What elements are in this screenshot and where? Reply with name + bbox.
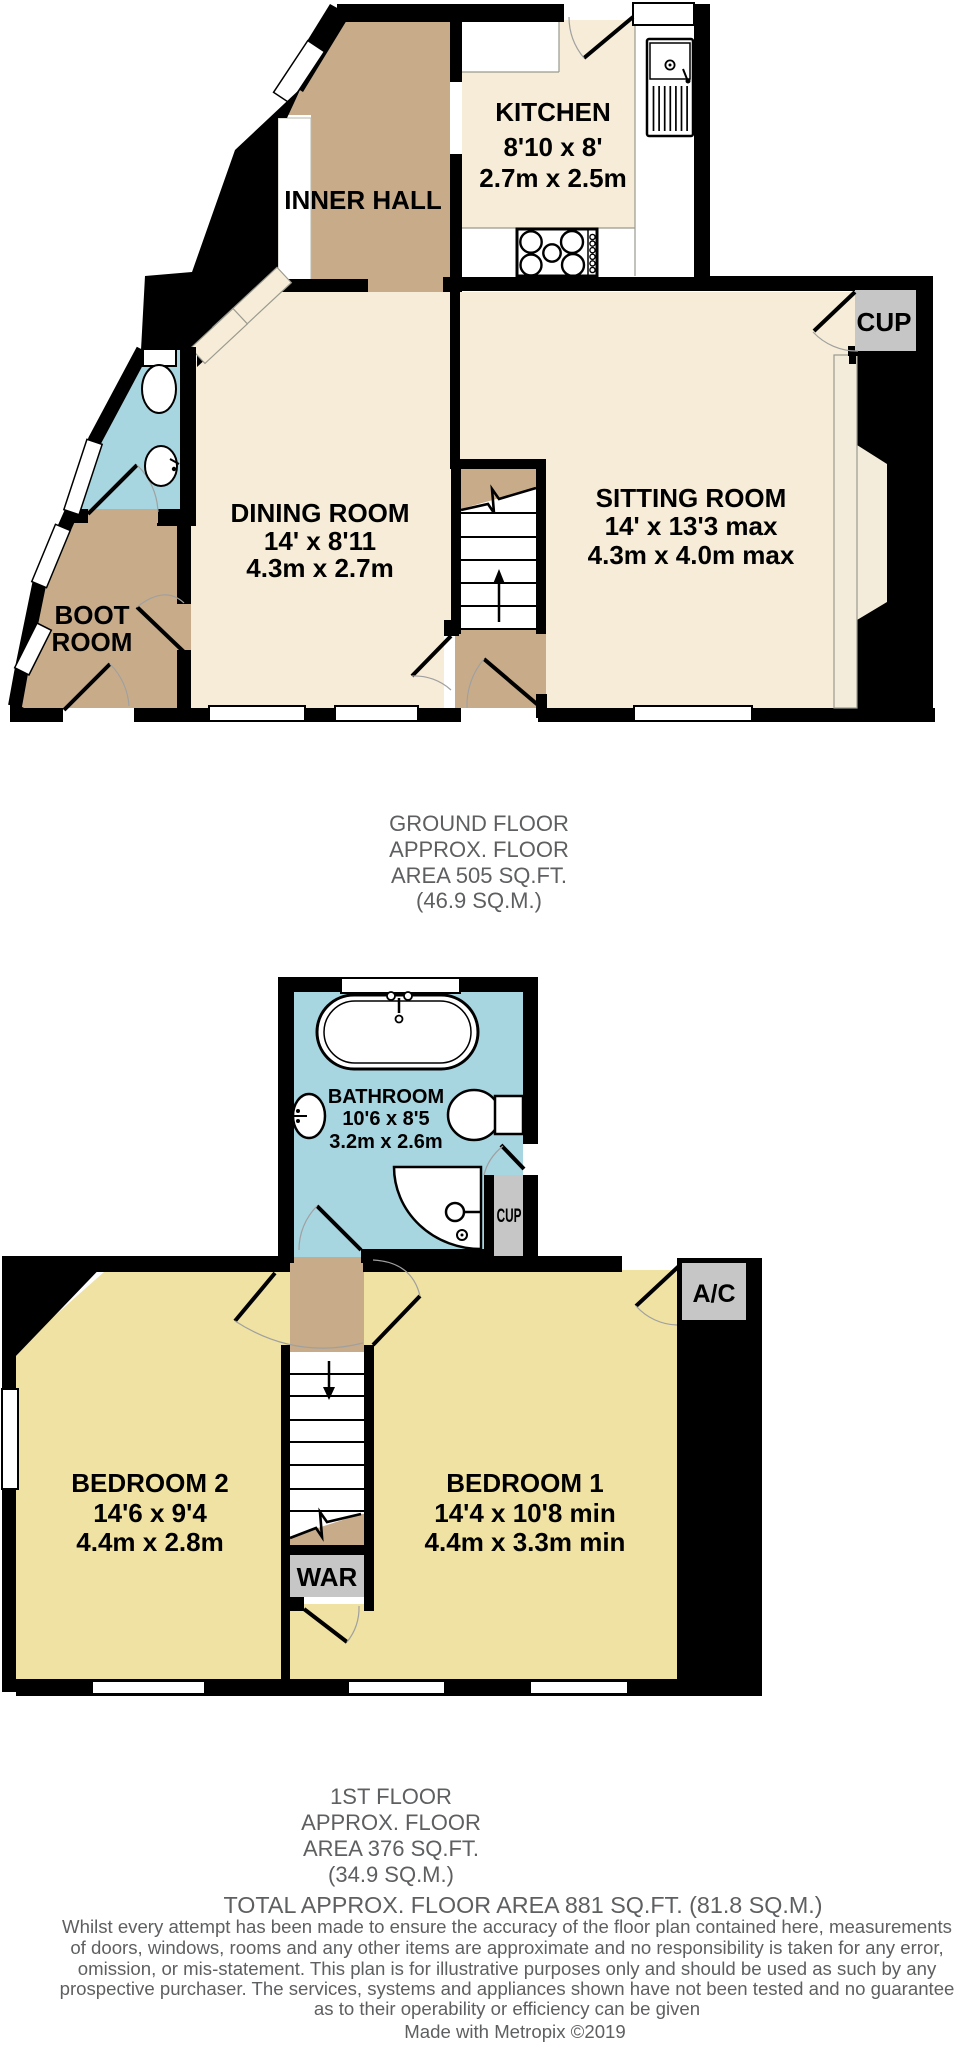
svg-text:BEDROOM 2: BEDROOM 2 [71, 1468, 228, 1498]
svg-text:(46.9 SQ.M.): (46.9 SQ.M.) [416, 888, 542, 913]
svg-text:AREA 505 SQ.FT.: AREA 505 SQ.FT. [391, 863, 567, 888]
svg-text:Made with Metropix ©2019: Made with Metropix ©2019 [404, 2021, 625, 2042]
svg-text:2.7m x 2.5m: 2.7m x 2.5m [479, 163, 626, 193]
svg-text:4.3m x 4.0m max: 4.3m x 4.0m max [588, 540, 795, 570]
svg-text:prospective purchaser. The ser: prospective purchaser. The services, sys… [60, 1978, 955, 1999]
svg-text:CUP: CUP [857, 307, 912, 337]
svg-text:14'6 x 9'4: 14'6 x 9'4 [93, 1498, 207, 1528]
svg-text:(34.9 SQ.M.): (34.9 SQ.M.) [328, 1862, 454, 1887]
svg-text:TOTAL APPROX. FLOOR AREA 881 S: TOTAL APPROX. FLOOR AREA 881 SQ.FT. (81.… [223, 1892, 822, 1918]
svg-text:AREA 376 SQ.FT.: AREA 376 SQ.FT. [303, 1836, 479, 1861]
svg-text:GROUND FLOOR: GROUND FLOOR [389, 811, 569, 836]
svg-text:8'10 x 8': 8'10 x 8' [503, 132, 602, 162]
svg-text:4.4m x 3.3m min: 4.4m x 3.3m min [425, 1527, 626, 1557]
svg-text:14' x 8'11: 14' x 8'11 [264, 526, 376, 556]
svg-text:as to their operability or eff: as to their operability or efficiency ca… [314, 1998, 700, 2019]
svg-text:CUP: CUP [497, 1206, 522, 1226]
svg-text:DINING ROOM: DINING ROOM [230, 498, 409, 528]
svg-text:SITTING ROOM: SITTING ROOM [596, 483, 787, 513]
svg-text:14'4 x 10'8 min: 14'4 x 10'8 min [434, 1498, 615, 1528]
svg-text:BOOT: BOOT [54, 600, 129, 630]
svg-text:omission, or mis-statement. Th: omission, or mis-statement. This plan is… [78, 1958, 937, 1979]
svg-text:WAR: WAR [297, 1562, 358, 1592]
svg-text:APPROX. FLOOR: APPROX. FLOOR [389, 837, 569, 862]
svg-text:A/C: A/C [692, 1280, 735, 1308]
svg-text:KITCHEN: KITCHEN [495, 97, 611, 127]
svg-text:Whilst every attempt has been: Whilst every attempt has been made to en… [62, 1916, 952, 1937]
svg-text:ROOM: ROOM [52, 627, 133, 657]
svg-text:BEDROOM 1: BEDROOM 1 [446, 1468, 603, 1498]
svg-text:1ST FLOOR: 1ST FLOOR [330, 1784, 452, 1809]
svg-text:10'6 x 8'5: 10'6 x 8'5 [342, 1108, 429, 1130]
svg-text:INNER HALL: INNER HALL [284, 185, 442, 215]
svg-text:14' x 13'3 max: 14' x 13'3 max [605, 511, 778, 541]
svg-text:4.4m x 2.8m: 4.4m x 2.8m [76, 1527, 223, 1557]
svg-text:of doors, windows, rooms and a: of doors, windows, rooms and any other i… [70, 1937, 943, 1958]
svg-text:APPROX. FLOOR: APPROX. FLOOR [301, 1810, 481, 1835]
svg-text:3.2m x 2.6m: 3.2m x 2.6m [329, 1131, 442, 1153]
svg-text:BATHROOM: BATHROOM [328, 1086, 444, 1108]
svg-text:4.3m x 2.7m: 4.3m x 2.7m [246, 553, 393, 583]
